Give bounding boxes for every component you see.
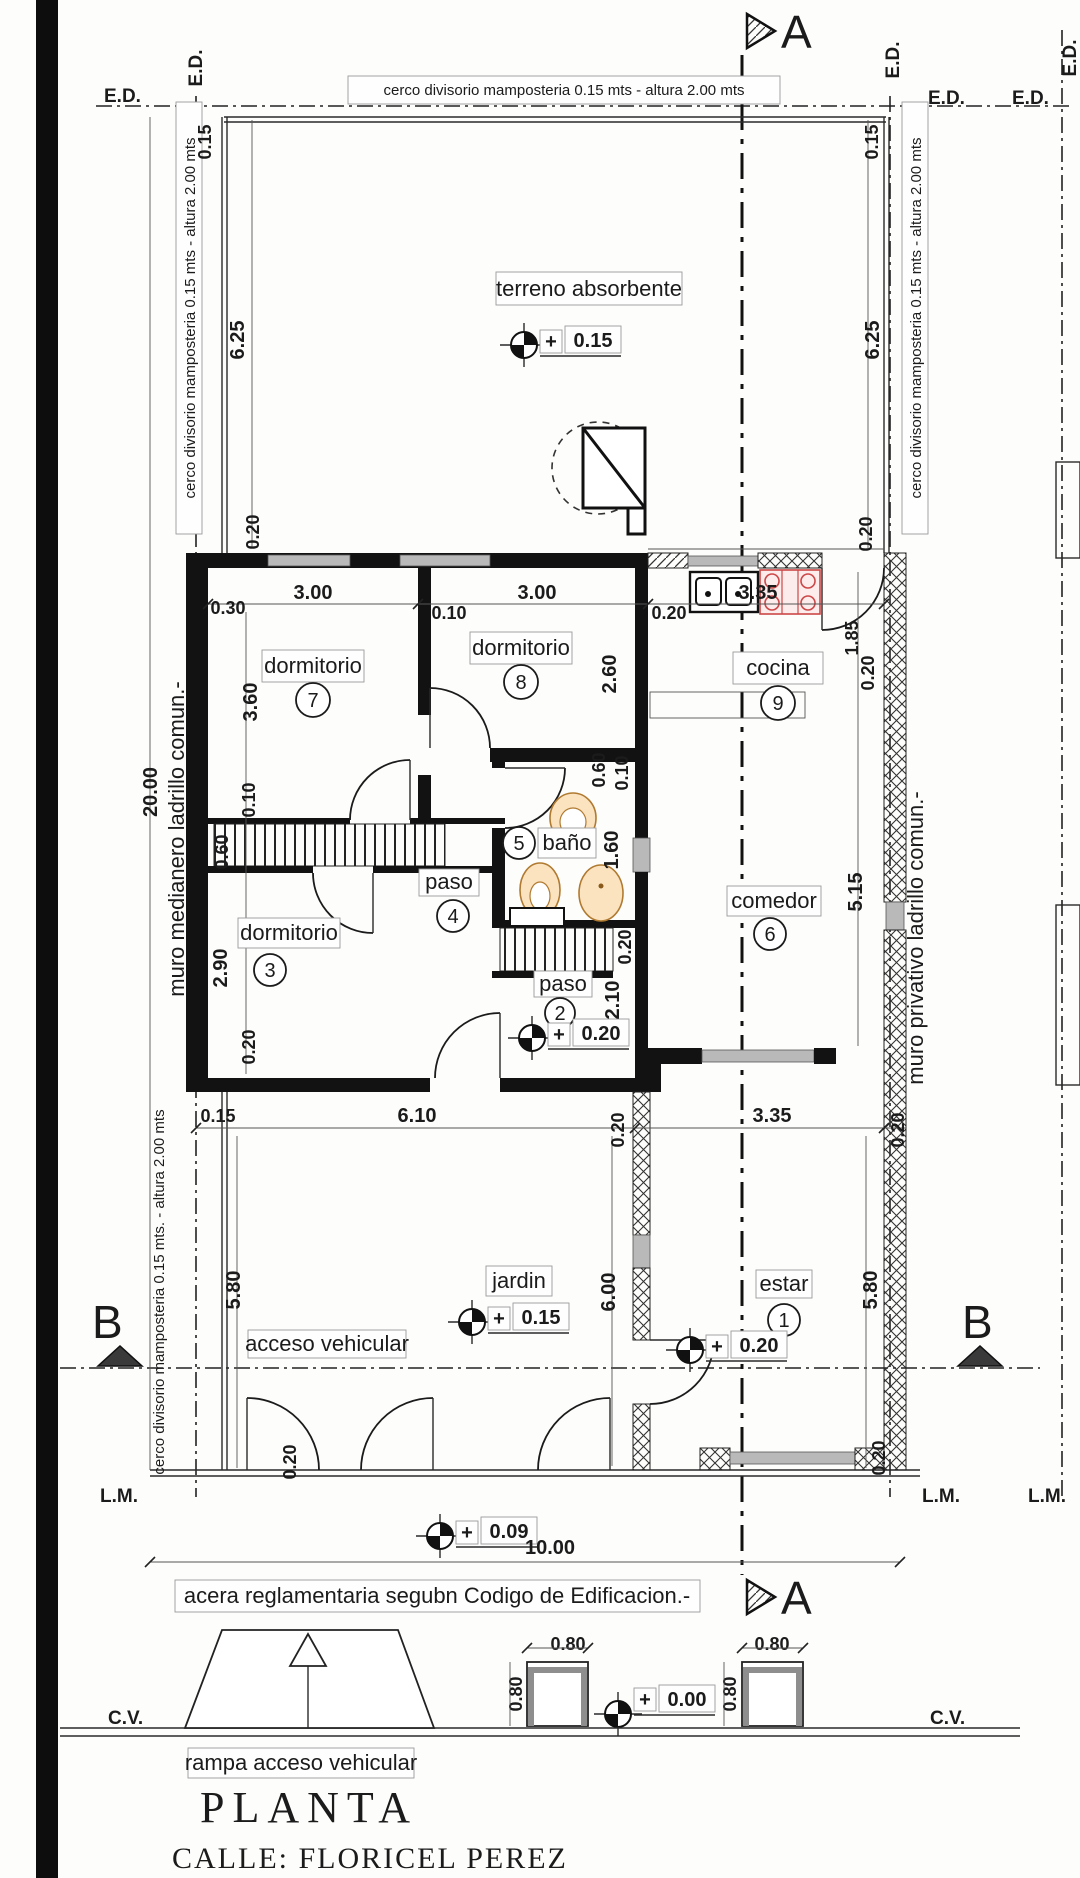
room-label: comedor — [731, 888, 817, 913]
room-label: jardin — [491, 1268, 546, 1293]
room-number: 2 — [554, 1003, 565, 1025]
svg-text:0.60: 0.60 — [589, 752, 609, 787]
svg-text:0.15: 0.15 — [862, 124, 882, 159]
svg-text:0.80: 0.80 — [550, 1634, 585, 1654]
svg-text:+: + — [553, 1024, 565, 1046]
svg-text:cerco divisorio mamposteria 0.: cerco divisorio mamposteria 0.15 mts - a… — [182, 138, 199, 499]
acceso-vehicular-label: acceso vehicular — [245, 1330, 409, 1358]
room-cocina: cocina 9 — [733, 652, 823, 720]
level-marker-paso2: + 0.20 — [508, 1016, 629, 1060]
plan-drawing: dormitorio 7 dormitorio 8 cocina 9 5 bañ… — [0, 0, 1080, 1878]
room-label: dormitorio — [264, 653, 362, 678]
svg-text:acera reglamentaria segubn Cod: acera reglamentaria segubn Codigo de Edi… — [184, 1583, 690, 1608]
svg-text:0.15: 0.15 — [574, 330, 613, 352]
svg-text:rampa acceso vehicular: rampa acceso vehicular — [185, 1750, 417, 1775]
room-number: 3 — [264, 960, 275, 982]
svg-text:0.20: 0.20 — [615, 929, 635, 964]
svg-text:0.20: 0.20 — [651, 603, 686, 623]
svg-text:0.20: 0.20 — [582, 1023, 621, 1045]
svg-text:1.60: 1.60 — [601, 831, 623, 870]
svg-text:10.00: 10.00 — [525, 1537, 575, 1559]
svg-text:E.D.: E.D. — [928, 88, 965, 109]
svg-text:L.M.: L.M. — [1028, 1486, 1066, 1507]
fence-note-top: cerco divisorio mamposteria 0.15 mts - a… — [348, 76, 780, 104]
level-marker-estar: + 0.20 — [666, 1328, 787, 1372]
svg-text:+: + — [545, 331, 557, 353]
svg-text:0.80: 0.80 — [506, 1676, 526, 1711]
svg-text:E.D.: E.D. — [883, 42, 904, 79]
terreno-absorbente-label: terreno absorbente — [496, 272, 682, 305]
room-label: dormitorio — [472, 635, 570, 660]
room-estar: estar 1 — [756, 1270, 812, 1336]
acera-note: acera reglamentaria segubn Codigo de Edi… — [175, 1580, 700, 1612]
room-paso-4: paso 4 — [419, 869, 479, 932]
room-number: 6 — [764, 924, 775, 946]
svg-text:cerco divisorio mamposteria 0.: cerco divisorio mamposteria 0.15 mts - a… — [384, 82, 745, 99]
svg-text:0.15: 0.15 — [522, 1307, 561, 1329]
svg-text:acceso vehicular: acceso vehicular — [245, 1331, 409, 1356]
svg-text:20.00: 20.00 — [140, 767, 162, 817]
svg-text:L.M.: L.M. — [922, 1486, 960, 1507]
svg-text:0.20: 0.20 — [858, 655, 878, 690]
svg-text:B: B — [962, 1296, 993, 1348]
street-section — [60, 1630, 1020, 1736]
room-label: cocina — [746, 655, 810, 680]
svg-text:6.00: 6.00 — [598, 1273, 620, 1312]
room-label: paso — [539, 971, 587, 996]
svg-text:0.20: 0.20 — [239, 1029, 259, 1064]
section-marker-a-top: A — [747, 6, 812, 58]
svg-text:3.35: 3.35 — [739, 582, 778, 604]
room-number: 1 — [778, 1310, 789, 1332]
scan-border-strip — [36, 0, 58, 1878]
svg-text:2.10: 2.10 — [602, 981, 624, 1020]
svg-text:3.35: 3.35 — [753, 1105, 792, 1127]
svg-text:B: B — [92, 1296, 123, 1348]
room-banio: 5 baño — [503, 827, 596, 859]
svg-text:3.60: 3.60 — [240, 683, 262, 722]
svg-text:cerco divisorio mamposteria 0.: cerco divisorio mamposteria 0.15 mts. - … — [151, 1109, 168, 1474]
room-label: baño — [543, 830, 592, 855]
svg-text:+: + — [639, 1689, 651, 1711]
svg-text:cerco divisorio mamposteria 0.: cerco divisorio mamposteria 0.15 mts - a… — [908, 138, 925, 499]
fence-note-left: cerco divisorio mamposteria 0.15 mts - a… — [176, 102, 202, 534]
svg-text:0.20: 0.20 — [856, 516, 876, 551]
level-marker-jardin: + 0.15 — [448, 1300, 569, 1344]
svg-text:0.15: 0.15 — [195, 124, 215, 159]
svg-text:0.20: 0.20 — [280, 1444, 300, 1479]
svg-text:6.25: 6.25 — [227, 321, 249, 360]
svg-text:0.15: 0.15 — [200, 1106, 235, 1126]
room-number: 9 — [772, 693, 783, 715]
room-label: estar — [760, 1271, 809, 1296]
svg-text:5.15: 5.15 — [845, 873, 867, 912]
svg-text:L.M.: L.M. — [100, 1486, 138, 1507]
svg-text:+: + — [711, 1336, 723, 1358]
room-number: 5 — [513, 833, 524, 855]
svg-text:0.80: 0.80 — [754, 1634, 789, 1654]
svg-text:+: + — [461, 1522, 473, 1544]
svg-text:0.10: 0.10 — [239, 782, 259, 817]
svg-text:E.D.: E.D. — [1012, 88, 1049, 109]
room-dormitorio-7: dormitorio 7 — [262, 650, 364, 717]
svg-text:E.D.: E.D. — [1060, 40, 1080, 77]
muro-privativo-label: muro privativo ladrillo comun.- — [903, 791, 928, 1084]
svg-text:E.D.: E.D. — [104, 86, 141, 107]
plan-title: PLANTA — [200, 1783, 418, 1832]
room-label: dormitorio — [240, 920, 338, 945]
room-label: paso — [425, 869, 473, 894]
svg-text:0.00: 0.00 — [668, 1689, 707, 1711]
svg-text:0.20: 0.20 — [888, 1112, 908, 1147]
section-marker-b-right: B — [958, 1296, 1002, 1366]
street-title: CALLE: FLORICEL PEREZ — [172, 1842, 568, 1875]
svg-text:A: A — [781, 1572, 812, 1624]
room-number: 7 — [307, 690, 318, 712]
svg-text:0.10: 0.10 — [612, 755, 632, 790]
tree-symbol — [552, 422, 645, 534]
svg-text:1.85: 1.85 — [842, 620, 862, 655]
level-marker-acera: + 0.09 — [416, 1514, 537, 1558]
svg-text:3.00: 3.00 — [518, 582, 557, 604]
room-number: 8 — [515, 672, 526, 694]
svg-text:C.V.: C.V. — [108, 1708, 143, 1729]
svg-text:3.00: 3.00 — [294, 582, 333, 604]
section-marker-a-bottom: A — [747, 1572, 812, 1624]
svg-text:+: + — [493, 1308, 505, 1330]
svg-text:5.80: 5.80 — [223, 1271, 245, 1310]
svg-text:0.30: 0.30 — [210, 598, 245, 618]
neighbor-structures — [1056, 462, 1080, 1085]
rampa-note: rampa acceso vehicular — [185, 1748, 417, 1778]
svg-text:0.20: 0.20 — [869, 1440, 889, 1475]
muro-medianero-label: muro medianero ladrillo comun.- — [164, 681, 189, 996]
room-number: 4 — [447, 906, 458, 928]
svg-text:6.25: 6.25 — [862, 321, 884, 360]
room-dormitorio-8: dormitorio 8 — [470, 632, 572, 699]
svg-text:0.20: 0.20 — [740, 1335, 779, 1357]
room-jardin: jardin — [486, 1266, 552, 1296]
fence-note-right: cerco divisorio mamposteria 0.15 mts - a… — [902, 102, 928, 534]
svg-text:0.20: 0.20 — [243, 514, 263, 549]
svg-text:C.V.: C.V. — [930, 1708, 965, 1729]
svg-text:0.80: 0.80 — [720, 1676, 740, 1711]
fence-note-left-bottom: cerco divisorio mamposteria 0.15 mts. - … — [151, 1109, 168, 1474]
svg-text:0.10: 0.10 — [431, 603, 466, 623]
svg-text:E.D.: E.D. — [186, 50, 207, 87]
estar-front-wall — [700, 1448, 884, 1470]
svg-text:0.09: 0.09 — [490, 1521, 529, 1543]
svg-text:0.20: 0.20 — [608, 1112, 628, 1147]
section-marker-b-left: B — [92, 1296, 142, 1366]
svg-text:2.90: 2.90 — [210, 949, 232, 988]
floor-plan-sheet: dormitorio 7 dormitorio 8 cocina 9 5 bañ… — [0, 0, 1080, 1878]
svg-text:5.80: 5.80 — [860, 1271, 882, 1310]
level-marker-terreno: + 0.15 — [500, 323, 621, 367]
svg-text:6.10: 6.10 — [398, 1105, 437, 1127]
svg-text:terreno absorbente: terreno absorbente — [496, 276, 682, 301]
svg-text:2.60: 2.60 — [599, 655, 621, 694]
jardin-estar-divider — [633, 1092, 650, 1470]
svg-text:0.60: 0.60 — [212, 834, 232, 869]
room-dormitorio-3: dormitorio 3 — [238, 918, 340, 986]
svg-text:A: A — [781, 6, 812, 58]
